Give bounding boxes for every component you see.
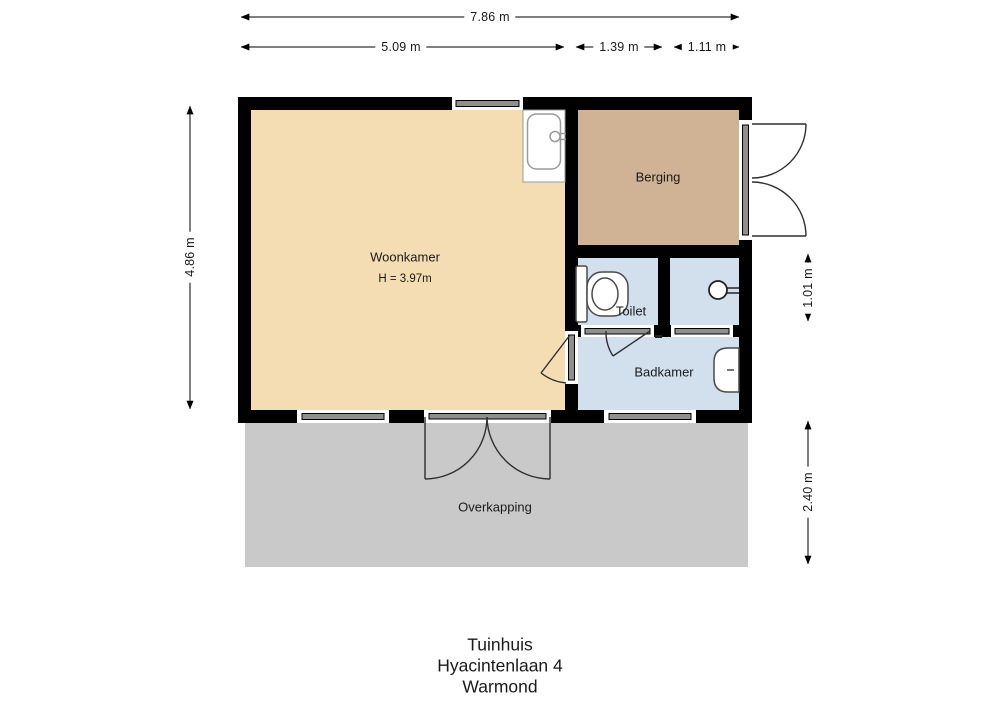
dim-label-segment-right: 1.11 m (682, 40, 733, 54)
title-city: Warmond (437, 677, 563, 698)
overkapping-floor (245, 416, 748, 567)
dim-label-right-upper: 1.01 m (801, 262, 815, 313)
floor-plan-drawing (0, 0, 1000, 707)
dim-label-segment-mid: 1.39 m (593, 40, 644, 54)
title-building: Tuinhuis (437, 635, 563, 656)
dim-label-total-width: 7.86 m (464, 10, 515, 24)
dim-label-right-lower: 2.40 m (801, 466, 815, 517)
woonkamer-label: Woonkamer (370, 250, 440, 265)
overkapping-label: Overkapping (458, 500, 532, 515)
kitchen-sink-icon (523, 110, 566, 182)
wall-left (238, 97, 251, 423)
woonkamer-height-note: H = 3.97m (378, 273, 431, 285)
title-street: Hyacintenlaan 4 (437, 656, 563, 677)
toilet-label: Toilet (616, 304, 646, 319)
window-bottom-badkamer (604, 410, 696, 423)
dim-label-segment-left: 5.09 m (375, 40, 426, 54)
dim-label-left-height: 4.86 m (183, 231, 197, 282)
floor-plan-page: 7.86 m 5.09 m 1.39 m 1.11 m 4.86 m 1.01 … (0, 0, 1000, 707)
door-stop-mark (655, 335, 662, 338)
berging-label: Berging (636, 170, 681, 185)
window-top-woonkamer (452, 97, 523, 110)
wall-berging-toilet (565, 245, 752, 258)
washbasin-icon (714, 348, 739, 392)
glass-partition-shower (671, 325, 733, 337)
title-block: Tuinhuis Hyacintenlaan 4 Warmond (437, 635, 563, 698)
shower-room-floor (670, 258, 739, 325)
double-door-berging (739, 120, 806, 240)
badkamer-label: Badkamer (634, 365, 693, 380)
wall-toilet-shower (658, 258, 670, 325)
window-bottom-woonkamer (297, 410, 389, 423)
